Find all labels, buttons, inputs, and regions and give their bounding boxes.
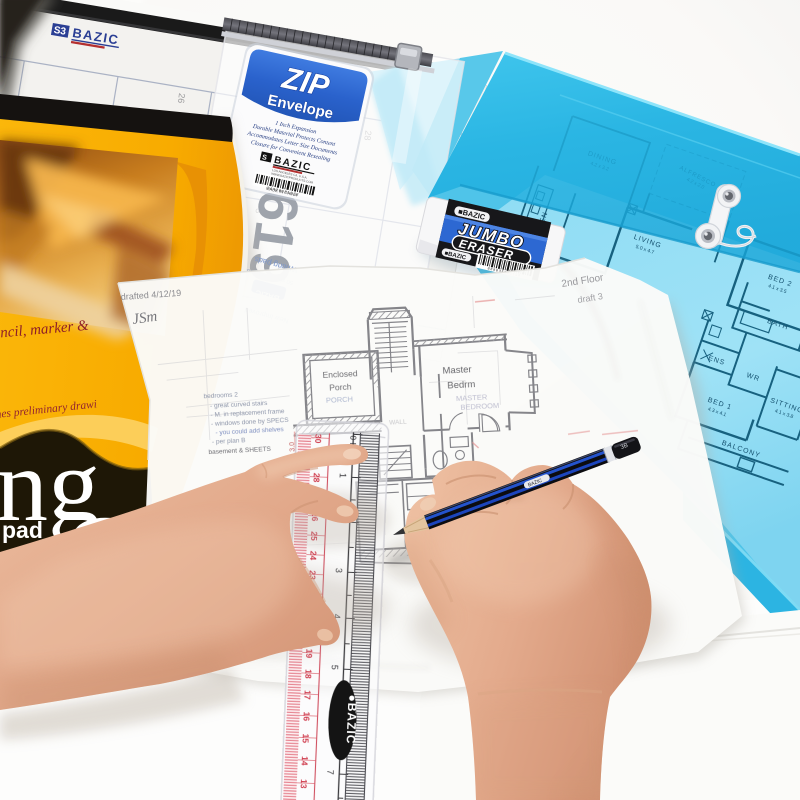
svg-text:Master: Master	[442, 364, 472, 377]
svg-text:19: 19	[304, 649, 314, 659]
svg-text:3: 3	[334, 568, 344, 573]
svg-text:14: 14	[300, 756, 310, 766]
svg-text:PORCH: PORCH	[326, 394, 354, 404]
svg-text:pad: pad	[2, 517, 43, 543]
svg-text:15: 15	[300, 733, 310, 743]
svg-text:Enclosed: Enclosed	[322, 368, 358, 380]
svg-text:Bedrm: Bedrm	[447, 379, 476, 391]
svg-text:24: 24	[308, 551, 318, 561]
svg-text:17: 17	[302, 690, 312, 700]
svg-text:▪▪▪▪▪▪▪: ▪▪▪▪▪▪▪	[354, 704, 359, 715]
svg-text:S3: S3	[53, 25, 67, 38]
svg-text:●BAZIC: ●BAZIC	[343, 694, 359, 744]
svg-text:13: 13	[299, 779, 309, 789]
svg-text:30: 30	[313, 434, 323, 444]
svg-text:7: 7	[325, 769, 335, 774]
svg-text:Porch: Porch	[329, 382, 352, 393]
svg-text:WALL: WALL	[389, 419, 407, 427]
svg-text:5: 5	[330, 665, 340, 670]
svg-text:28: 28	[311, 473, 321, 483]
svg-text:1: 1	[338, 473, 348, 478]
svg-text:18: 18	[303, 669, 313, 679]
svg-text:26: 26	[176, 93, 187, 104]
svg-text:16: 16	[301, 711, 311, 721]
